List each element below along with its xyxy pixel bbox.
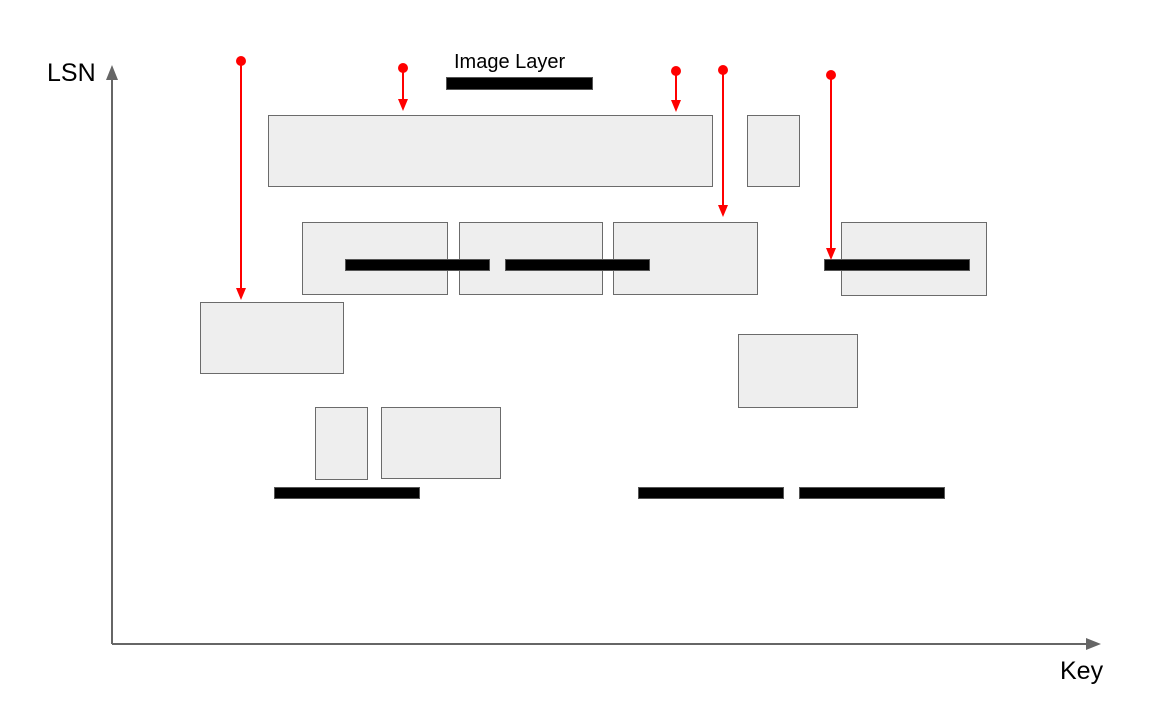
- image-layer-bar: [345, 259, 490, 271]
- layer-map-diagram: LSN Key Image Layer Delta Layer: [0, 0, 1175, 704]
- lsn-axis-label: LSN: [47, 60, 96, 88]
- lsn-axis-arrowhead-icon: [106, 65, 118, 80]
- request-line: [240, 61, 242, 288]
- key-axis: [112, 643, 1087, 645]
- read-request-arrow: [398, 63, 408, 111]
- delta-layer-rect: [738, 334, 858, 408]
- image-layer-bar: [638, 487, 784, 499]
- request-arrowhead-icon: [718, 205, 728, 217]
- delta-layer-rect: [747, 115, 800, 187]
- image-layer-label: Image Layer: [454, 51, 565, 73]
- image-layer-bar: [274, 487, 420, 499]
- request-arrowhead-icon: [671, 100, 681, 112]
- request-arrowhead-icon: [236, 288, 246, 300]
- delta-layer-rect: [200, 302, 344, 374]
- request-line: [675, 71, 677, 100]
- key-axis-arrowhead-icon: [1086, 638, 1101, 650]
- request-line: [830, 75, 832, 248]
- request-arrowhead-icon: [398, 99, 408, 111]
- key-axis-label: Key: [1060, 658, 1103, 686]
- delta-layer-rect: [315, 407, 368, 480]
- read-request-arrow: [671, 66, 681, 112]
- request-line: [722, 70, 724, 205]
- read-request-arrow: [236, 56, 246, 300]
- request-arrowhead-icon: [826, 248, 836, 260]
- image-layer-bar: [799, 487, 945, 499]
- delta-layer-rect: [381, 407, 501, 479]
- image-layer-bar: [824, 259, 970, 271]
- image-layer-bar: [446, 77, 593, 90]
- image-layer-bar: [505, 259, 650, 271]
- delta-layer-rect: [268, 115, 713, 187]
- read-request-arrow: [718, 65, 728, 217]
- request-line: [402, 68, 404, 99]
- read-request-arrow: [826, 70, 836, 260]
- lsn-axis: [111, 80, 113, 644]
